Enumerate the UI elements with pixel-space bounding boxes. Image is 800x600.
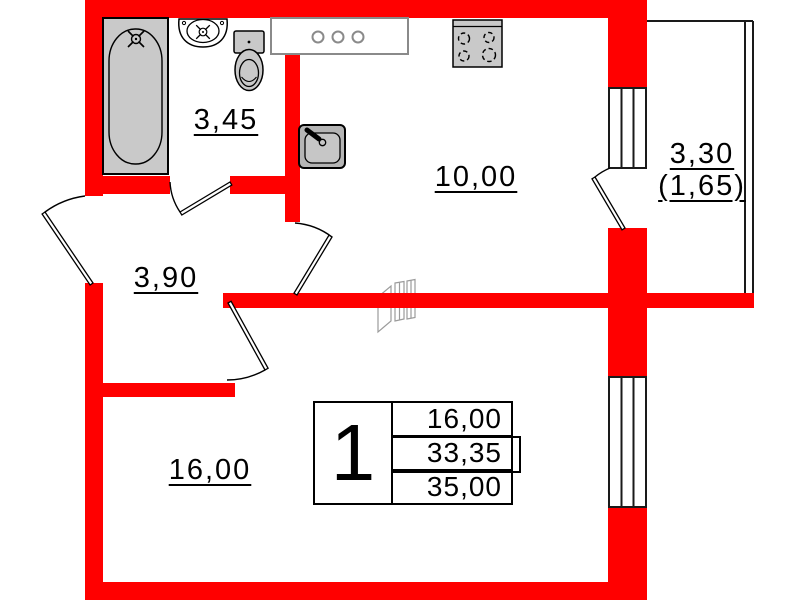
- total-area-value: 35,00: [393, 471, 511, 503]
- wall: [230, 176, 300, 194]
- wall: [103, 383, 235, 397]
- door-swing-bathroom: [170, 182, 232, 215]
- washbasin-icon: [179, 19, 227, 47]
- apartment-area-value: 33,35: [393, 437, 511, 471]
- wall: [608, 18, 647, 88]
- living-area-value: 16,00: [393, 403, 511, 437]
- unit-number: 1: [315, 403, 393, 503]
- bathtub-icon: [103, 18, 168, 174]
- wall: [608, 507, 647, 582]
- kitchen-sink-icon: [299, 125, 345, 168]
- wall: [608, 228, 647, 293]
- window-living-room: [609, 377, 646, 507]
- room-label-balcony: 3,30: [670, 138, 734, 171]
- room-label-balcony-reduced: (1,65): [658, 170, 746, 203]
- door-swing-entrance: [42, 196, 93, 285]
- door-swing-kitchen: [294, 223, 332, 295]
- wall-segments: [85, 0, 754, 600]
- wall: [223, 293, 754, 308]
- wall: [85, 176, 170, 194]
- stove-icon: [453, 20, 502, 67]
- wall: [85, 0, 647, 18]
- floor-plan-drawing: [0, 0, 800, 600]
- unit-area-values: 16,00 33,35 35,00: [393, 403, 511, 503]
- wall: [85, 582, 647, 600]
- door-swing-living-room: [227, 301, 268, 380]
- wall: [85, 283, 103, 600]
- wall: [608, 308, 647, 377]
- room-label-living-room: 16,00: [169, 454, 252, 487]
- room-label-kitchen: 10,00: [435, 161, 518, 194]
- wall: [85, 0, 103, 196]
- door-swing-balcony: [592, 168, 625, 230]
- room-label-bathroom: 3,45: [194, 104, 258, 137]
- floor-plan: 3,45 10,00 3,90 16,00 3,30 (1,65) 1 16,0…: [0, 0, 800, 600]
- kitchen-counter-icon: [271, 18, 408, 54]
- room-label-hallway: 3,90: [134, 262, 198, 295]
- unit-info-table: 1 16,00 33,35 35,00: [313, 401, 513, 505]
- toilet-icon: [234, 31, 264, 91]
- window-balcony: [609, 88, 646, 168]
